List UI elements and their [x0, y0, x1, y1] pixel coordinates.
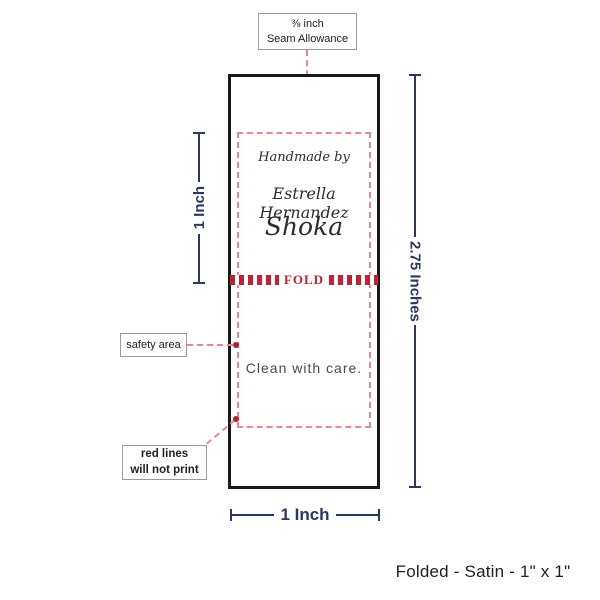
measure-left-label: 1 Inch [191, 182, 208, 233]
safety-area-callout: safety area [120, 333, 187, 357]
fold-label: FOLD [279, 275, 329, 285]
measure-right-label: 2.75 Inches [407, 237, 424, 326]
measure-left-upper-line [198, 134, 200, 182]
safety-area-label: safety area [126, 339, 180, 351]
measure-right-lower-line [414, 325, 416, 486]
measurement-left: 1 Inch [192, 132, 206, 284]
measure-right-upper-line [414, 76, 416, 237]
seam-allowance-line2: Seam Allowance [267, 32, 348, 47]
redlines-anchor-dot [233, 416, 239, 422]
safety-anchor-dot [233, 342, 239, 348]
brand-name-text: Shoka [228, 212, 380, 241]
measure-bottom-left-line [232, 514, 274, 516]
measure-bottom-label: 1 Inch [274, 505, 335, 525]
fold-line: FOLD [230, 275, 378, 285]
measurement-right: 2.75 Inches [408, 74, 422, 488]
fold-bars-right [329, 275, 378, 285]
seam-allowance-callout: ⅜ inch Seam Allowance [258, 13, 357, 50]
redlines-line2: will not print [130, 463, 198, 479]
safety-connector-line [187, 344, 233, 346]
handmade-by-text: Handmade by [228, 150, 380, 165]
label-template-diagram: ⅜ inch Seam Allowance Handmade by Estrel… [0, 0, 600, 600]
product-caption: Folded - Satin - 1" x 1" [372, 562, 594, 582]
redlines-line1: red lines [141, 447, 188, 463]
measure-bottom-right-line [336, 514, 378, 516]
redlines-callout: red lines will not print [122, 445, 207, 480]
seam-allowance-line1: ⅜ inch [291, 17, 323, 32]
measure-left-bottom-cap [193, 282, 205, 284]
fold-bars-left [230, 275, 279, 285]
care-instruction-text: Clean with care. [228, 360, 380, 376]
measure-right-bottom-cap [409, 486, 421, 488]
measurement-bottom: 1 Inch [230, 507, 380, 523]
measure-bottom-right-cap [378, 509, 380, 521]
measure-left-lower-line [198, 234, 200, 282]
